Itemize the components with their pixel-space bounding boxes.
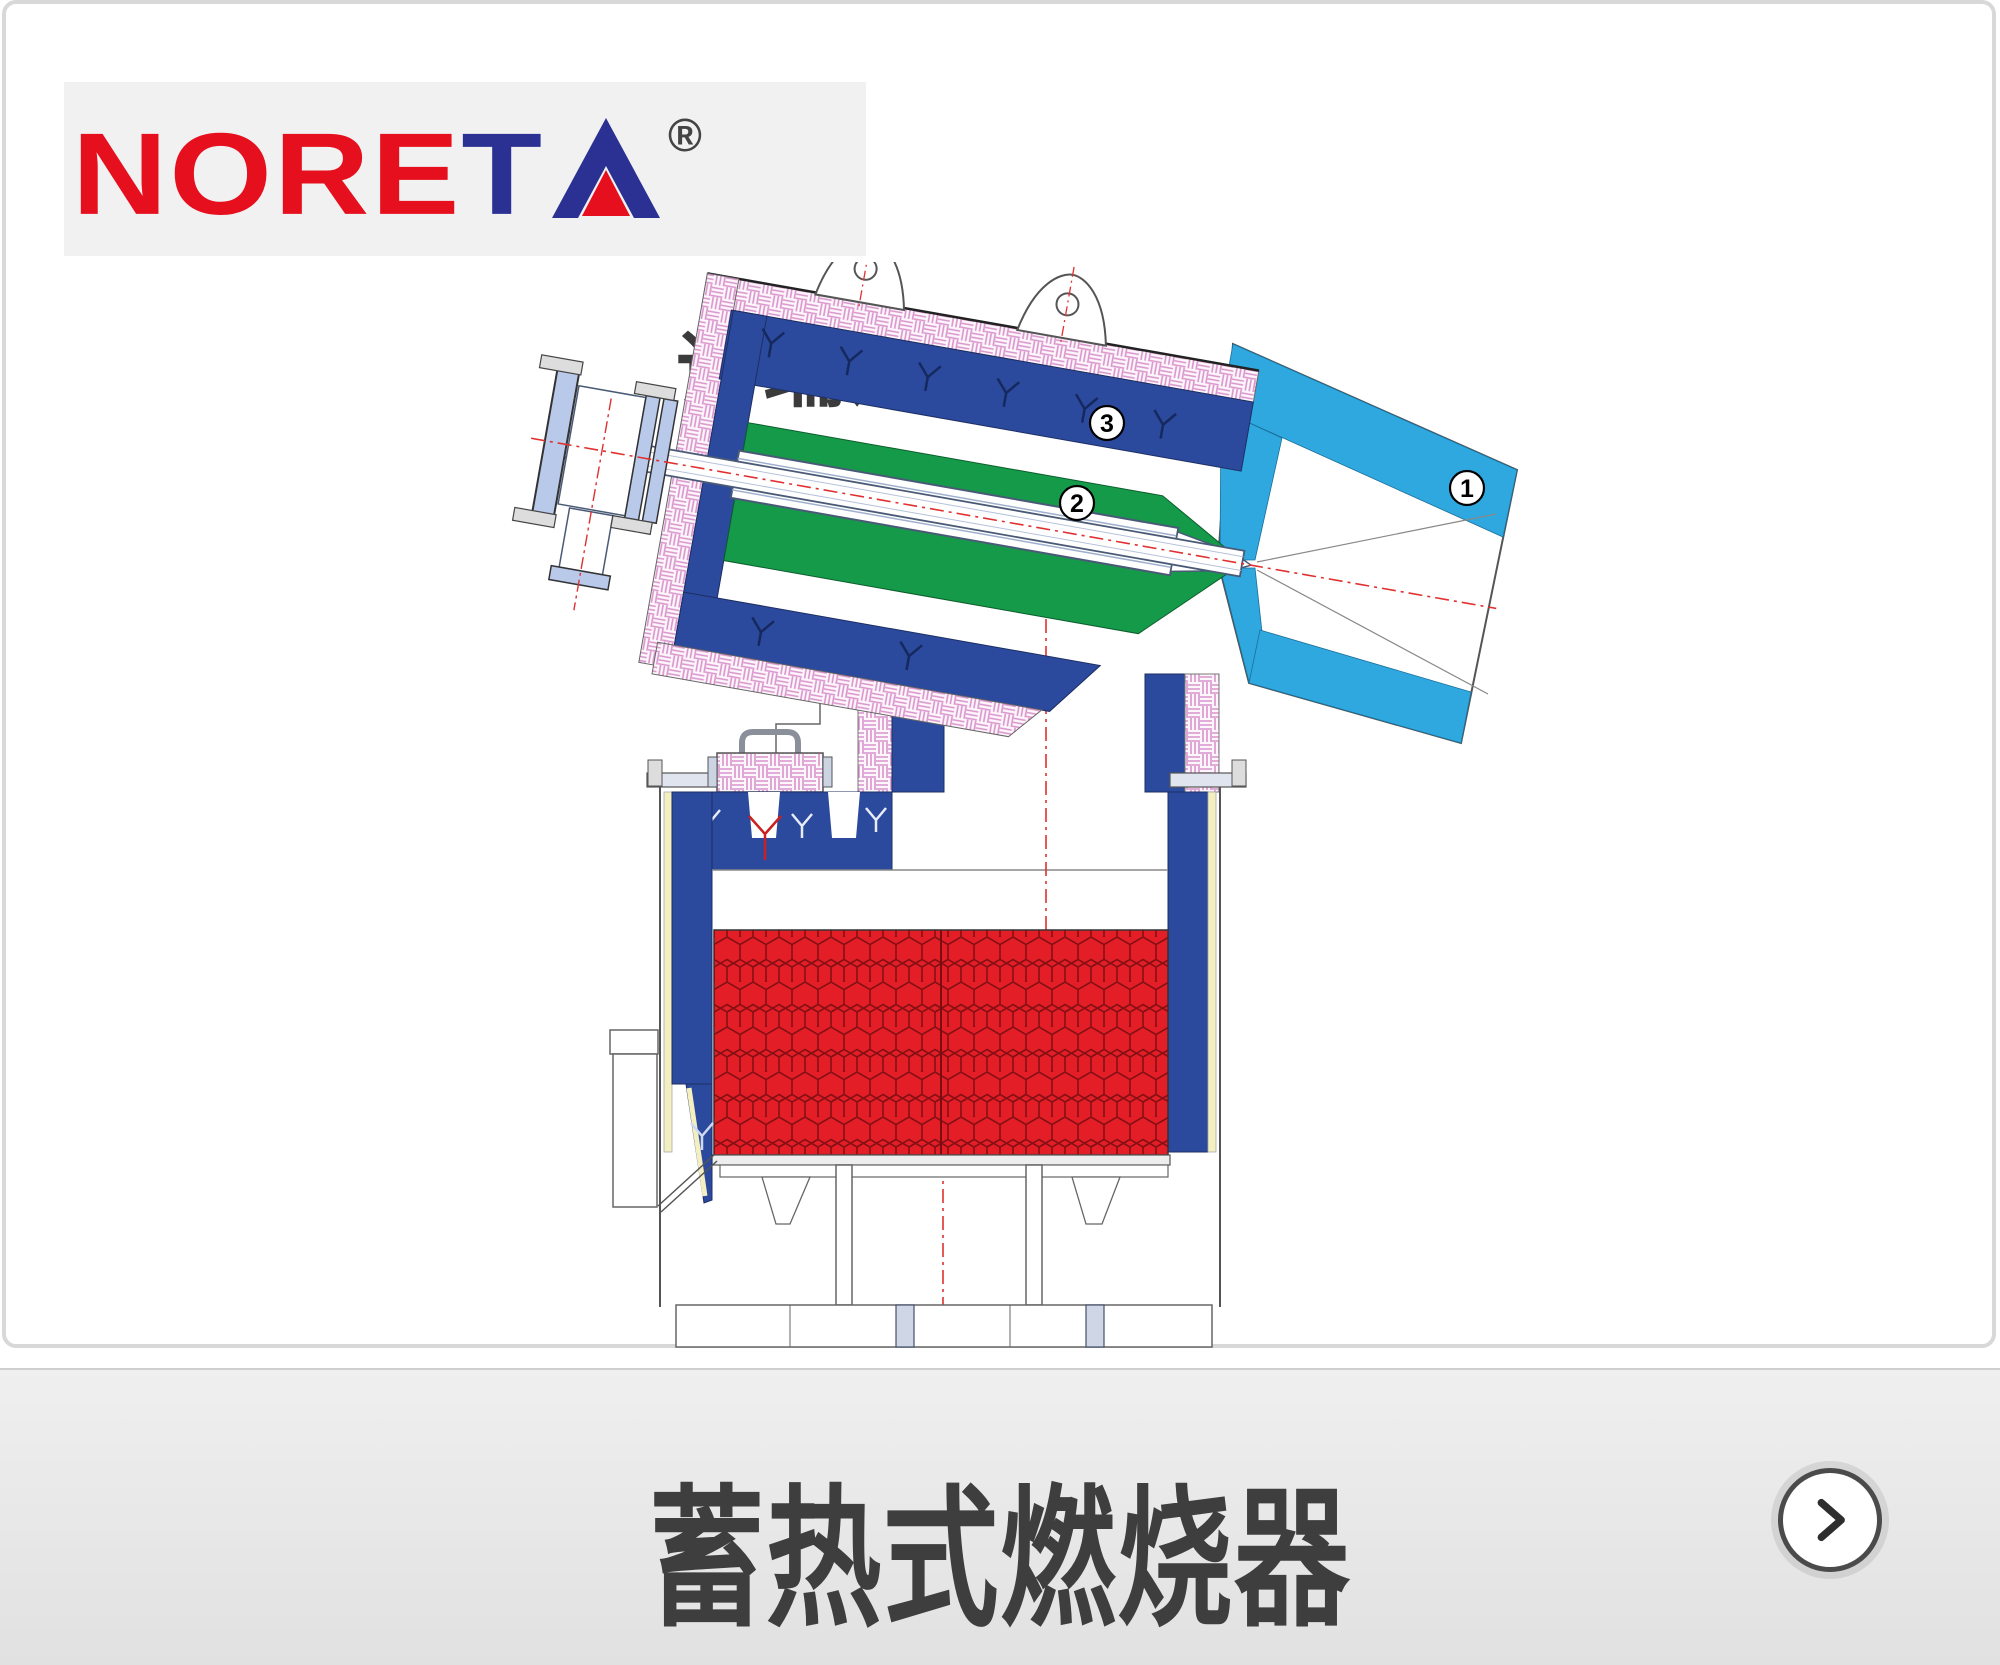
callout-number-3: 3 [1100,410,1114,438]
bolt [648,760,662,786]
right-lining-wall [1168,792,1208,1152]
brand-wordmark: NORE T ® [72,110,702,220]
chevron-right-icon [1799,1489,1861,1551]
title-bar: 蓄热式燃烧器 [0,1368,2000,1665]
bolt [1232,760,1246,786]
right-insulation-strip [1208,792,1216,1152]
support-frame [676,1165,1212,1347]
bottom-plate [712,1155,1170,1165]
callout-number-1: 1 [1460,475,1474,503]
logo-letter-a-triangle-icon [550,116,662,220]
callout-number-2: 2 [1070,490,1084,518]
page: NORE T ® 诺瑞达 [0,0,2000,1665]
registered-trademark-icon: ® [668,112,702,158]
inspection-lid [708,732,832,792]
logo-text-t: T [461,129,544,220]
logo-text-nore: NORE [72,129,461,220]
brand-logo: NORE T ® 诺瑞达 [64,82,866,256]
regenerator-honeycomb [714,930,1168,1155]
nozzle-block [1218,344,1517,743]
left-insulation-strip [664,792,672,1152]
next-slide-button[interactable] [1778,1468,1882,1572]
product-title: 蓄热式燃烧器 [240,1436,1760,1656]
burner-cross-section-diagram: 1 2 3 [480,262,1525,1365]
left-lining-wall [672,792,712,1084]
